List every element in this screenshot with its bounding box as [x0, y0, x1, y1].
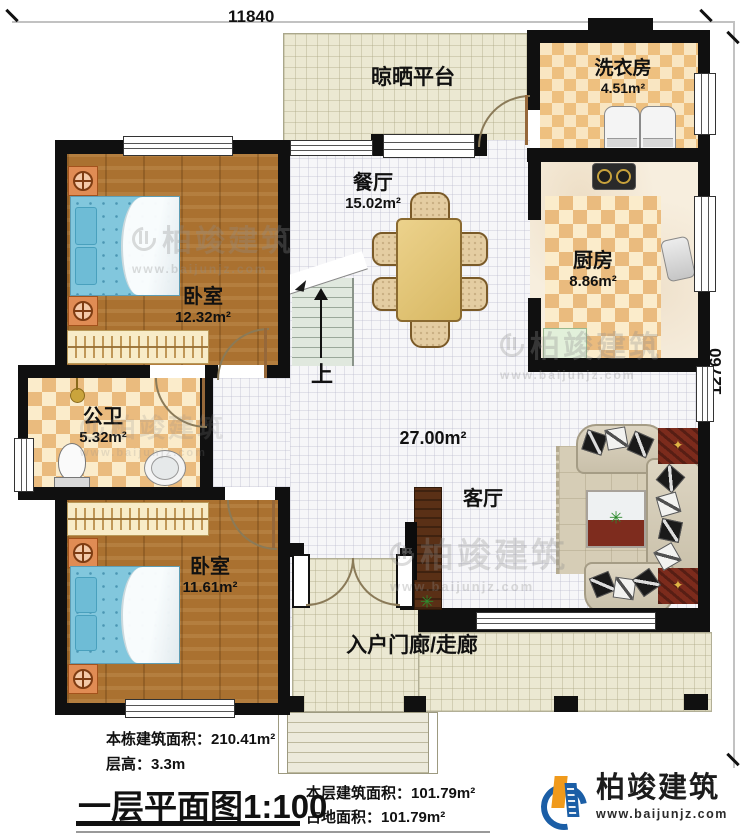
room-name: 餐厅 [328, 172, 418, 195]
floor-area-label: 本层建筑面积： [306, 785, 411, 802]
pillow-icon [75, 615, 97, 651]
sofa-pillow-icon [604, 426, 628, 450]
room-name: 晾晒平台 [352, 66, 474, 90]
room-area: 4.51m² [575, 80, 671, 96]
watermark-logo-icon [80, 414, 104, 440]
decor-plant-icon [420, 596, 434, 610]
entry-steps-rail [278, 712, 288, 774]
bathroom-window [14, 438, 34, 492]
wall [18, 365, 150, 378]
right-dimension-line [733, 21, 735, 768]
watermark-brand: 柏竣建筑 [162, 216, 294, 260]
shower-head-icon [70, 388, 85, 403]
wall [55, 703, 125, 715]
room-area: 12.32m² [148, 309, 258, 326]
living-bottom-window [476, 612, 656, 630]
brand-logo-icon [540, 774, 588, 826]
room-area: 27.00m² [388, 428, 478, 449]
label-bedroom-bottom: 卧室 11.61m² [155, 556, 265, 596]
watermark-brand: 柏竣建筑 [110, 408, 226, 445]
wall [278, 500, 290, 715]
watermark-url: www.baijunjz.com [80, 447, 226, 459]
label-drying-platform: 晾晒平台 [352, 66, 474, 90]
wall [55, 140, 67, 378]
porch-column [288, 696, 304, 712]
room-name: 厨房 [548, 250, 638, 273]
laundry-window [694, 73, 716, 135]
room-name: 入户门廊/走廊 [312, 634, 512, 658]
title-underline-thick [76, 821, 300, 826]
floor-area-row: 本层建筑面积：101.79m² [306, 782, 475, 803]
label-living-area: 27.00m² [388, 428, 478, 449]
ground-area-row: 占地面积：101.79m² [306, 806, 445, 827]
bedroom-top-door-leaf [264, 328, 267, 378]
floor-height-label: 层高： [106, 756, 151, 773]
floor-height-value: 3.3m [151, 756, 185, 773]
wall [527, 148, 698, 162]
pillow-icon [75, 247, 97, 285]
porch-column [684, 694, 708, 710]
kitchen-window [694, 196, 716, 292]
watermark: 柏竣建筑 www.baijunjz.com [500, 322, 662, 382]
room-name: 客厅 [448, 488, 518, 511]
wall [588, 18, 653, 31]
wall [267, 365, 290, 378]
bedroom-bottom-window [125, 699, 235, 718]
watermark: 柏竣建筑 www.baijunjz.com [390, 528, 568, 594]
watermark-logo-icon [132, 225, 156, 251]
dining-chair-icon [458, 277, 488, 311]
title-underline-thin [76, 831, 490, 833]
corner-mat-icon [658, 568, 698, 604]
watermark-logo-icon [500, 331, 524, 357]
building-area-value: 210.41m² [211, 731, 275, 748]
label-laundry: 洗衣房 4.51m² [575, 58, 671, 96]
brand-logo: 柏竣建筑 www.baijunjz.com [540, 774, 728, 826]
wall [55, 500, 67, 715]
room-area: 15.02m² [328, 195, 418, 212]
top-dimension-label: 11840 [228, 7, 274, 27]
floor-height-row: 层高：3.3m [106, 753, 185, 774]
watermark-logo-icon [390, 540, 414, 566]
washing-machine-icon [604, 106, 640, 150]
nightstand-icon [68, 538, 98, 568]
brand-website: www.baijunjz.com [596, 807, 728, 821]
coffee-table-icon [586, 490, 646, 548]
wall [205, 365, 218, 378]
watermark: 柏竣建筑 www.baijunjz.com [80, 408, 226, 459]
room-name: 卧室 [148, 286, 258, 309]
laundry-door-leaf [525, 95, 528, 145]
wall [55, 140, 123, 154]
corner-mat-icon [658, 428, 698, 464]
washing-machine-icon [640, 106, 676, 150]
entry-steps [286, 712, 430, 774]
entry-steps-rail [428, 712, 438, 774]
room-name: 洗衣房 [575, 58, 671, 80]
bedroom-bottom-door-leaf [272, 500, 275, 548]
dining-platform-window [383, 134, 475, 158]
building-area-label: 本栋建筑面积： [106, 731, 211, 748]
label-dining: 餐厅 15.02m² [328, 172, 418, 212]
pillow-icon [75, 577, 97, 613]
wall [18, 487, 225, 500]
room-area: 11.61m² [155, 579, 265, 596]
wardrobe-icon [67, 330, 209, 364]
label-bedroom-top: 卧室 12.32m² [148, 286, 258, 326]
burner-icon [616, 169, 631, 184]
ground-area-value: 101.79m² [381, 809, 445, 826]
staircase-arrow-head [314, 288, 328, 300]
ground-area-label: 占地面积： [306, 809, 381, 826]
wall [233, 703, 290, 715]
nightstand-icon [68, 296, 98, 326]
wall [528, 162, 541, 220]
sofa-pillow-icon [658, 518, 683, 543]
floor-area-value: 101.79m² [411, 785, 475, 802]
porch-column [554, 696, 578, 712]
dining-chair-icon [458, 232, 488, 266]
stove-icon [592, 163, 636, 190]
pillow-icon [75, 207, 97, 245]
brand-text-block: 柏竣建筑 www.baijunjz.com [596, 774, 728, 821]
wall [275, 487, 290, 500]
room-name: 卧室 [155, 556, 265, 579]
bedroom-top-window [123, 136, 233, 156]
staircase-arrow-line [320, 298, 322, 358]
platform-railing [290, 140, 373, 156]
sink-basin-icon [151, 456, 179, 480]
living-side-window [696, 366, 714, 422]
stairs-up-text: 上 [304, 362, 340, 387]
label-stairs-up: 上 [304, 362, 340, 387]
nightstand-icon [68, 166, 98, 196]
nightstand-icon [68, 664, 98, 694]
watermark-brand: 柏竣建筑 [420, 528, 568, 577]
label-kitchen: 厨房 8.86m² [548, 250, 638, 290]
wardrobe-icon [67, 502, 209, 536]
building-area-row: 本栋建筑面积：210.41m² [106, 728, 275, 749]
floorplan-page: { "dimensions": { "top_width": "11840", … [0, 0, 750, 840]
watermark-url: www.baijunjz.com [132, 262, 294, 276]
shower-cord [76, 378, 78, 390]
wall [527, 30, 710, 43]
porch-column [404, 696, 426, 712]
dining-table-icon [396, 218, 462, 322]
watermark-url: www.baijunjz.com [390, 579, 568, 594]
brand-name: 柏竣建筑 [596, 774, 728, 803]
label-living: 客厅 [448, 488, 518, 511]
plan-title-text: 一层平面图 [78, 788, 243, 825]
watermark-brand: 柏竣建筑 [530, 322, 662, 366]
room-area: 8.86m² [548, 273, 638, 290]
burner-icon [597, 169, 612, 184]
label-porch: 入户门廊/走廊 [312, 634, 512, 658]
watermark: 柏竣建筑 www.baijunjz.com [132, 216, 294, 276]
watermark-url: www.baijunjz.com [500, 368, 662, 382]
